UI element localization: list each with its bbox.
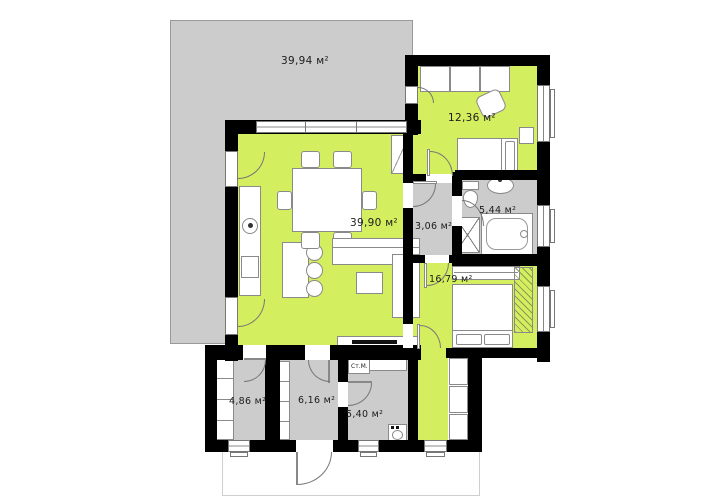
corridor-closet — [449, 386, 468, 413]
door-terrace-living — [225, 297, 238, 335]
tv — [352, 340, 397, 344]
window-storage-left — [228, 440, 250, 452]
area-label-storage-left: 4,86 м² — [229, 396, 266, 407]
washing-machine-label: Ст.М. — [351, 363, 368, 370]
door-opening — [403, 183, 413, 208]
window-bedroom-main — [537, 286, 550, 332]
floor-plan: 39,94 м² 12,36 м² 39,90 м² 3,06 м² 5,44 … — [0, 0, 710, 502]
kitchen-sink-tap — [248, 223, 253, 228]
area-label-utility: 5,40 м² — [346, 409, 383, 420]
porch-outline — [222, 452, 480, 496]
boiler-door — [392, 430, 403, 440]
door-opening — [403, 324, 413, 348]
window-corridor — [424, 440, 447, 452]
boiler-knob — [396, 426, 399, 429]
nightstand — [519, 127, 534, 144]
desk-cabinet — [480, 66, 510, 92]
door-opening — [425, 255, 449, 263]
shelf-line — [217, 420, 233, 421]
wardrobe-rail-line — [454, 272, 518, 273]
boiler-knob — [391, 426, 394, 429]
shelf-line — [217, 378, 233, 379]
room-corridor — [416, 348, 448, 442]
wall — [408, 348, 418, 442]
window-sill — [550, 209, 555, 243]
wall — [205, 345, 217, 452]
window-sill — [550, 290, 555, 328]
bed-line — [501, 139, 502, 174]
corridor-closet — [449, 414, 468, 440]
bathtub-drain — [520, 230, 528, 238]
dining-chair — [277, 191, 292, 210]
window-mullion — [305, 121, 306, 133]
window-sill — [550, 89, 555, 138]
kitchen-island — [282, 242, 309, 298]
coffee-table — [356, 272, 383, 294]
area-label-bedroom-main: 16,79 м² — [429, 274, 473, 285]
wall — [405, 55, 550, 66]
door-opening — [452, 196, 462, 226]
kitchen-oven — [241, 256, 259, 278]
wall — [452, 254, 537, 266]
window-bathroom — [537, 205, 550, 247]
shelf-line — [280, 401, 289, 402]
shelf-line — [280, 381, 289, 382]
area-label-bathroom: 5,44 м² — [479, 205, 516, 216]
door-terrace-bedroom — [405, 86, 418, 104]
window-bedroom-top — [537, 85, 550, 142]
blanket-line — [452, 330, 513, 331]
dining-chair — [301, 232, 320, 249]
dining-chair — [333, 151, 352, 168]
area-label-living: 39,90 м² — [350, 217, 398, 229]
entrance-opening — [296, 440, 333, 452]
pillow — [456, 334, 482, 345]
door-terrace-living — [225, 151, 238, 187]
bar-stool — [306, 280, 323, 297]
desk-cabinet — [450, 66, 480, 92]
shelf-line — [280, 421, 289, 422]
wall — [468, 356, 482, 452]
bar-stool — [306, 262, 323, 279]
built-in-wardrobe — [514, 267, 533, 333]
window-living-terrace — [256, 121, 407, 133]
wall — [403, 134, 413, 349]
kitchen-counter — [239, 186, 261, 296]
room-terrace-side — [170, 124, 233, 344]
area-label-storage-mid: 6,16 м² — [298, 395, 335, 406]
door-opening — [305, 345, 330, 360]
pillow — [505, 141, 515, 172]
dining-chair — [362, 191, 377, 210]
corridor-closet — [449, 358, 468, 385]
area-label-terrace: 39,94 м² — [281, 55, 329, 67]
wall — [446, 348, 550, 358]
door-opening — [338, 382, 348, 407]
toilet-tank — [462, 181, 479, 190]
area-label-hallway: 3,06 м² — [415, 221, 452, 232]
window-utility — [358, 440, 379, 452]
wall — [455, 170, 537, 180]
area-label-bedroom-top: 12,36 м² — [448, 112, 496, 124]
pillow — [484, 334, 510, 345]
window-mullion — [356, 121, 357, 133]
wall — [265, 358, 280, 442]
dining-chair — [301, 151, 320, 168]
room-terrace — [170, 20, 413, 125]
